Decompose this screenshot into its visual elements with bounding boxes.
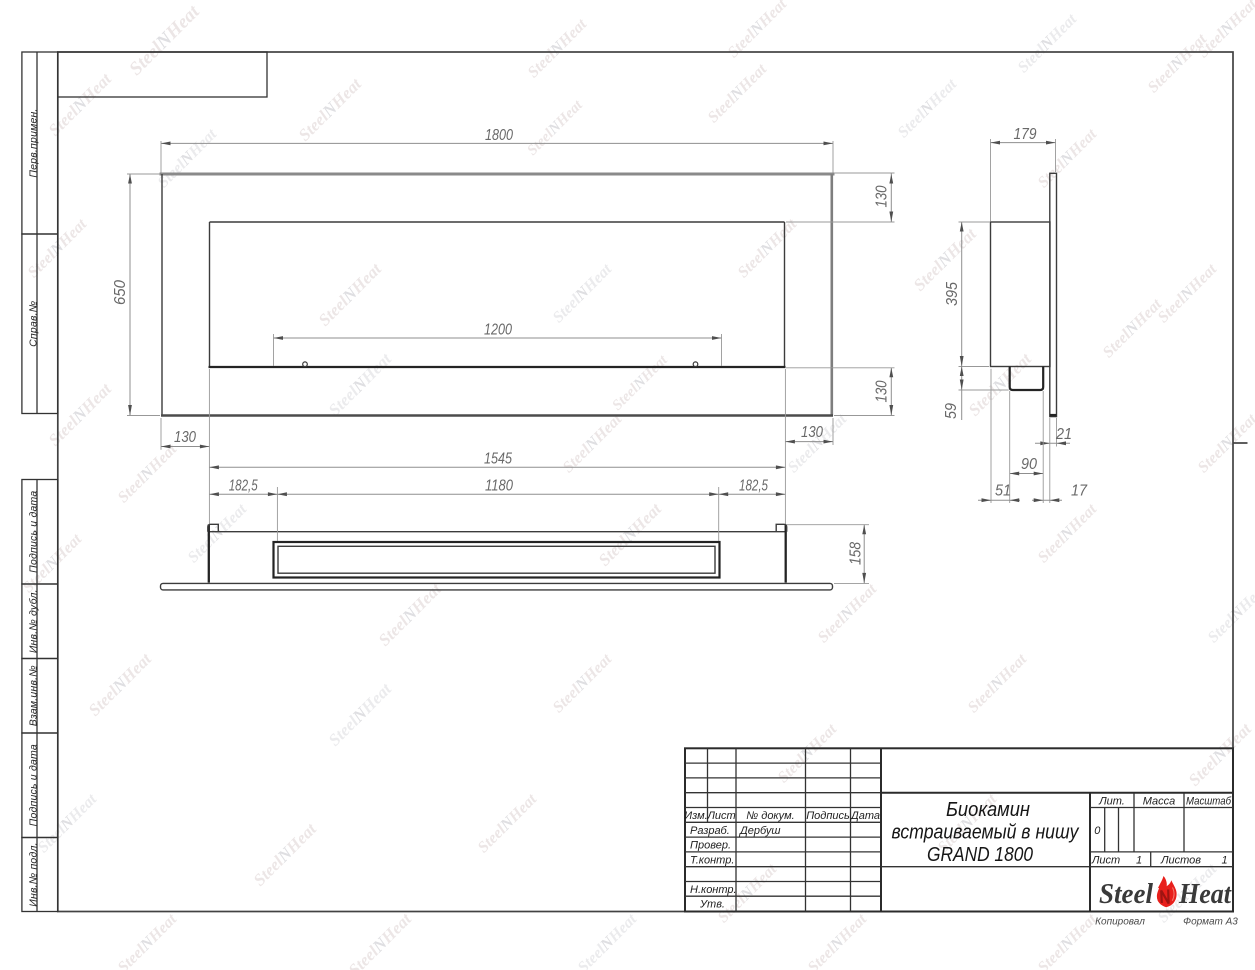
svg-text:1200: 1200 xyxy=(484,322,512,339)
svg-text:Дата: Дата xyxy=(849,810,880,822)
svg-text:Перв.примен.: Перв.примен. xyxy=(27,108,39,177)
svg-text:встраиваемый в нишу: встраиваемый в нишу xyxy=(892,822,1080,844)
svg-text:GRAND 1800: GRAND 1800 xyxy=(927,844,1033,866)
svg-text:51: 51 xyxy=(995,483,1011,500)
svg-text:Лист: Лист xyxy=(1091,855,1120,867)
svg-text:Изм.: Изм. xyxy=(684,810,707,822)
svg-text:Steel: Steel xyxy=(1099,878,1154,910)
svg-text:Листов: Листов xyxy=(1160,855,1201,867)
svg-text:650: 650 xyxy=(112,280,129,305)
svg-text:90: 90 xyxy=(1021,456,1037,473)
svg-text:130: 130 xyxy=(874,185,891,207)
svg-text:Дербуш: Дербуш xyxy=(738,825,781,837)
svg-text:21: 21 xyxy=(1055,426,1072,443)
svg-text:Инв.№ подл.: Инв.№ подл. xyxy=(27,842,39,906)
svg-text:395: 395 xyxy=(944,282,961,306)
svg-text:Инв.№ дубл.: Инв.№ дубл. xyxy=(27,589,39,653)
svg-text:Н.контр.: Н.контр. xyxy=(690,884,737,896)
svg-text:Масса: Масса xyxy=(1143,796,1176,808)
svg-text:1180: 1180 xyxy=(485,478,513,495)
svg-text:Справ.№: Справ.№ xyxy=(27,301,39,347)
svg-text:Провер.: Провер. xyxy=(690,840,731,852)
svg-text:1800: 1800 xyxy=(485,127,513,144)
svg-text:№ докум.: № докум. xyxy=(746,810,794,822)
svg-text:Масштаб: Масштаб xyxy=(1186,796,1232,808)
svg-text:Подпись и дата: Подпись и дата xyxy=(27,491,39,573)
svg-text:158: 158 xyxy=(848,542,865,565)
svg-text:1: 1 xyxy=(1221,855,1227,867)
svg-text:Лит.: Лит. xyxy=(1098,796,1125,808)
svg-text:1545: 1545 xyxy=(484,451,512,468)
svg-text:182,5: 182,5 xyxy=(739,478,768,495)
svg-text:Подпись и дата: Подпись и дата xyxy=(27,744,39,826)
svg-text:Копировал: Копировал xyxy=(1095,917,1145,928)
svg-text:Биокамин: Биокамин xyxy=(946,799,1030,821)
svg-text:1: 1 xyxy=(1136,855,1142,867)
svg-text:Разраб.: Разраб. xyxy=(690,825,730,837)
svg-text:130: 130 xyxy=(874,380,891,402)
svg-text:Утв.: Утв. xyxy=(699,899,725,911)
svg-text:Heat: Heat xyxy=(1178,878,1232,910)
svg-text:130: 130 xyxy=(801,424,823,441)
svg-text:Формат А3: Формат А3 xyxy=(1183,917,1238,928)
svg-text:Т.контр.: Т.контр. xyxy=(690,855,734,867)
svg-text:Лист: Лист xyxy=(706,810,735,822)
svg-text:59: 59 xyxy=(943,403,960,419)
svg-text:Подпись: Подпись xyxy=(806,810,850,822)
svg-text:179: 179 xyxy=(1014,126,1037,143)
svg-text:0: 0 xyxy=(1094,825,1101,837)
svg-text:17: 17 xyxy=(1071,483,1088,500)
svg-text:Взам.инв.№: Взам.инв.№ xyxy=(27,665,39,726)
svg-text:182,5: 182,5 xyxy=(229,478,258,495)
svg-text:130: 130 xyxy=(174,429,196,446)
